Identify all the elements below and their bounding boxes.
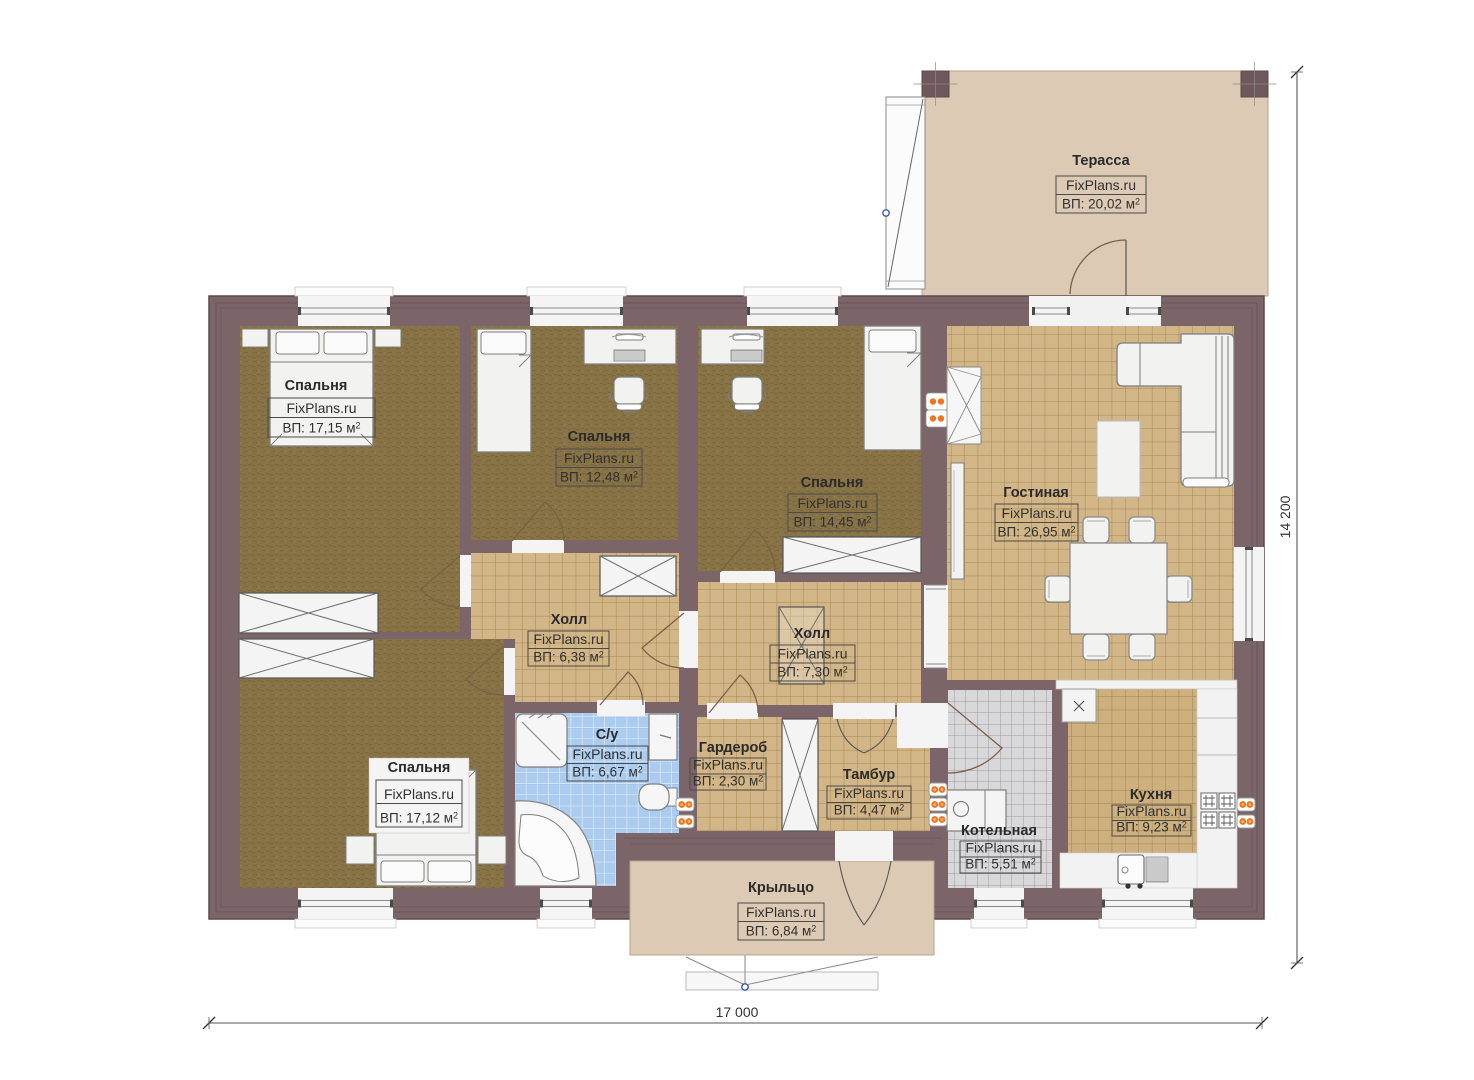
svg-text:ВП: 20,02 м2: ВП: 20,02 м2 [1062, 197, 1140, 212]
svg-text:Гардероб: Гардероб [699, 740, 768, 756]
svg-text:FixPlans.ru: FixPlans.ru [777, 646, 847, 662]
svg-text:FixPlans.ru: FixPlans.ru [965, 840, 1035, 856]
svg-text:Кухня: Кухня [1130, 787, 1172, 803]
svg-text:ВП: 9,23 м2: ВП: 9,23 м2 [1116, 820, 1187, 835]
svg-text:Холл: Холл [794, 626, 830, 642]
svg-text:ВП: 2,30 м2: ВП: 2,30 м2 [693, 774, 764, 789]
svg-text:С/у: С/у [596, 727, 619, 743]
svg-text:FixPlans.ru: FixPlans.ru [746, 904, 816, 920]
svg-text:ВП: 6,67 м2: ВП: 6,67 м2 [572, 765, 643, 780]
svg-text:FixPlans.ru: FixPlans.ru [564, 450, 634, 466]
svg-text:FixPlans.ru: FixPlans.ru [1001, 505, 1071, 521]
svg-text:ВП: 5,51 м2: ВП: 5,51 м2 [965, 857, 1036, 872]
svg-text:FixPlans.ru: FixPlans.ru [286, 400, 356, 416]
svg-text:Спальня: Спальня [801, 475, 864, 491]
svg-text:FixPlans.ru: FixPlans.ru [1066, 177, 1136, 193]
svg-text:Спальня: Спальня [285, 378, 348, 394]
svg-text:FixPlans.ru: FixPlans.ru [572, 746, 642, 762]
svg-text:ВП: 7,30 м2: ВП: 7,30 м2 [777, 665, 848, 680]
svg-text:Холл: Холл [551, 612, 587, 628]
svg-text:FixPlans.ru: FixPlans.ru [384, 786, 454, 802]
svg-text:Терасса: Терасса [1072, 153, 1130, 169]
svg-text:FixPlans.ru: FixPlans.ru [797, 495, 867, 511]
svg-text:ВП: 17,12 м2: ВП: 17,12 м2 [380, 811, 458, 826]
svg-text:ВП: 26,95 м2: ВП: 26,95 м2 [997, 525, 1075, 540]
svg-text:ВП: 4,47 м2: ВП: 4,47 м2 [834, 803, 905, 818]
svg-text:ВП: 12,48 м2: ВП: 12,48 м2 [560, 470, 638, 485]
svg-text:Крыльцо: Крыльцо [748, 880, 814, 896]
svg-text:17 000: 17 000 [716, 1004, 759, 1020]
svg-text:FixPlans.ru: FixPlans.ru [693, 757, 763, 773]
svg-text:FixPlans.ru: FixPlans.ru [533, 631, 603, 647]
svg-text:Спальня: Спальня [568, 429, 631, 445]
svg-text:Котельная: Котельная [961, 823, 1037, 839]
svg-text:Спальня: Спальня [388, 760, 451, 776]
svg-text:14 200: 14 200 [1277, 495, 1293, 538]
svg-text:ВП: 6,38 м2: ВП: 6,38 м2 [533, 650, 604, 665]
svg-text:ВП: 6,84 м2: ВП: 6,84 м2 [746, 924, 817, 939]
svg-text:FixPlans.ru: FixPlans.ru [1116, 803, 1186, 819]
svg-text:FixPlans.ru: FixPlans.ru [834, 785, 904, 801]
svg-text:ВП: 14,45 м2: ВП: 14,45 м2 [793, 515, 871, 530]
svg-text:Тамбур: Тамбур [843, 767, 896, 783]
svg-text:Гостиная: Гостиная [1003, 485, 1069, 501]
svg-text:ВП: 17,15 м2: ВП: 17,15 м2 [282, 421, 360, 436]
